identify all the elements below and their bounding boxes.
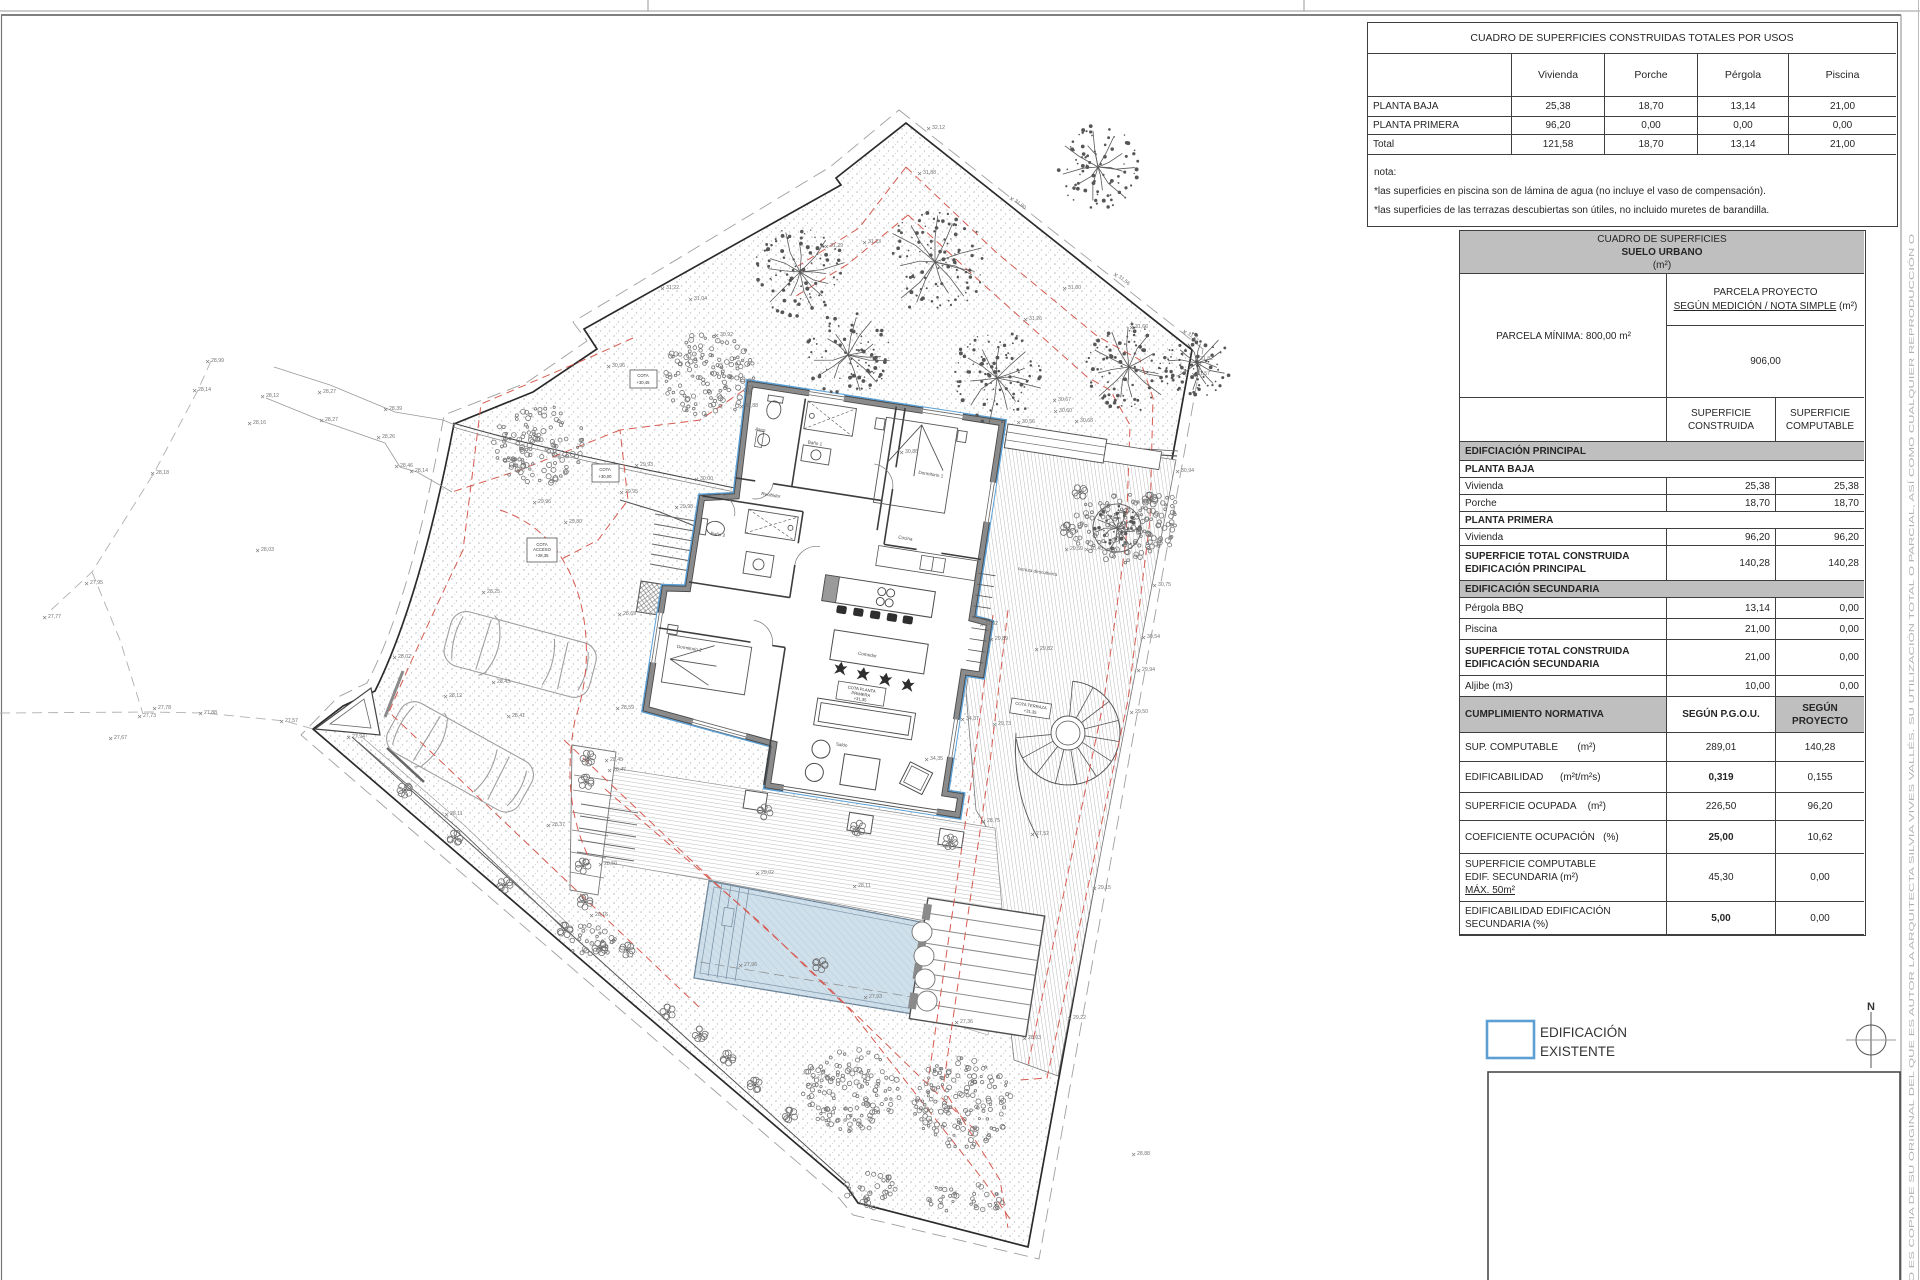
svg-text:COTA: COTA	[599, 467, 611, 472]
svg-text:30,68: 30,68	[1080, 418, 1093, 424]
svg-text:31,82: 31,82	[1200, 356, 1213, 362]
svg-text:30,54: 30,54	[1147, 634, 1160, 640]
svg-text:30,67: 30,67	[1058, 397, 1071, 403]
svg-text:29,94: 29,94	[1142, 667, 1155, 673]
svg-text:28,16: 28,16	[253, 420, 266, 426]
svg-text:31,26: 31,26	[1029, 316, 1042, 322]
svg-text:27,96: 27,96	[744, 962, 757, 968]
svg-text:27,67: 27,67	[114, 735, 127, 741]
svg-text:31,66: 31,66	[1135, 324, 1148, 330]
svg-text:28,43: 28,43	[497, 679, 510, 685]
svg-text:27,88: 27,88	[204, 710, 217, 716]
svg-text:29,82: 29,82	[1040, 646, 1053, 652]
svg-text:30,92: 30,92	[720, 332, 733, 338]
svg-text:27,77: 27,77	[48, 614, 61, 620]
svg-text:29,96: 29,96	[538, 499, 551, 505]
svg-text:27,57: 27,57	[285, 718, 298, 724]
svg-text:29,22: 29,22	[1073, 1015, 1086, 1021]
svg-text:27,94: 27,94	[352, 734, 365, 740]
svg-text:EDIFICACIÓN: EDIFICACIÓN	[1540, 1025, 1627, 1040]
svg-text:31,29: 31,29	[830, 243, 843, 249]
svg-text:28,26: 28,26	[382, 434, 395, 440]
svg-text:29,98: 29,98	[680, 504, 693, 510]
svg-text:30,00: 30,00	[700, 476, 713, 482]
svg-text:31,22: 31,22	[666, 285, 679, 291]
svg-text:29,50: 29,50	[1135, 709, 1148, 715]
svg-text:28,03: 28,03	[1028, 1035, 1041, 1041]
svg-text:34,37: 34,37	[966, 716, 979, 722]
svg-text:28,75: 28,75	[987, 818, 1000, 824]
svg-text:30,56: 30,56	[1022, 419, 1035, 425]
svg-text:31,60: 31,60	[1068, 285, 1081, 291]
svg-text:31,57: 31,57	[1197, 371, 1210, 377]
svg-text:28,47: 28,47	[613, 767, 626, 773]
svg-text:30,45: 30,45	[1090, 546, 1103, 552]
svg-text:28,59: 28,59	[621, 705, 634, 711]
svg-text:27,95: 27,95	[90, 580, 103, 586]
svg-text:28,88: 28,88	[1137, 1151, 1150, 1157]
svg-text:+28,35: +28,35	[536, 553, 550, 558]
svg-text:N: N	[1867, 1001, 1875, 1013]
svg-text:28,03: 28,03	[261, 547, 274, 553]
svg-text:28,46: 28,46	[400, 463, 413, 469]
svg-text:27,73: 27,73	[143, 713, 156, 719]
svg-text:ACCESO: ACCESO	[533, 547, 551, 552]
svg-text:28,18: 28,18	[156, 470, 169, 476]
svg-text:31,23: 31,23	[868, 239, 881, 245]
svg-text:29,89: 29,89	[995, 636, 1008, 642]
svg-text:27,86: 27,86	[817, 1074, 830, 1080]
svg-text:30,88: 30,88	[745, 403, 758, 409]
svg-text:29,80: 29,80	[569, 519, 582, 525]
svg-text:30,94: 30,94	[1181, 468, 1194, 474]
svg-text:27,52: 27,52	[1036, 831, 1049, 837]
svg-text:31,04: 31,04	[694, 296, 707, 302]
svg-text:28,39: 28,39	[389, 406, 402, 412]
svg-text:28,11: 28,11	[858, 883, 871, 889]
svg-text:28,16: 28,16	[595, 912, 608, 918]
svg-text:28,37: 28,37	[552, 822, 565, 828]
svg-text:29,93: 29,93	[640, 462, 653, 468]
svg-text:27,78: 27,78	[158, 705, 171, 711]
svg-text:28,12: 28,12	[266, 393, 279, 399]
svg-text:O ES COPIA DE SU ORIGINAL DEL: O ES COPIA DE SU ORIGINAL DEL QUE ES AUT…	[1907, 233, 1916, 1280]
svg-text:+30,00: +30,00	[599, 474, 613, 479]
svg-text:30,86: 30,86	[905, 449, 918, 455]
svg-text:28,11: 28,11	[450, 811, 463, 817]
svg-text:31,88: 31,88	[923, 170, 936, 176]
svg-text:29,02: 29,02	[761, 870, 774, 876]
svg-text:COTA: COTA	[637, 373, 649, 378]
svg-text:31,92: 31,92	[985, 621, 998, 627]
svg-text:30,75: 30,75	[1158, 582, 1171, 588]
svg-text:28,27: 28,27	[323, 389, 336, 395]
svg-text:29,73: 29,73	[998, 721, 1011, 727]
svg-text:27,36: 27,36	[960, 1019, 973, 1025]
svg-text:27,93: 27,93	[869, 994, 882, 1000]
svg-text:29,59: 29,59	[1070, 546, 1083, 552]
svg-text:32,12: 32,12	[932, 125, 945, 131]
svg-text:28,69: 28,69	[623, 611, 636, 617]
svg-text:+30,45: +30,45	[637, 380, 651, 385]
svg-text:28,14: 28,14	[415, 468, 428, 474]
svg-text:29,95: 29,95	[625, 489, 638, 495]
svg-text:28,50: 28,50	[604, 861, 617, 867]
svg-text:EXISTENTE: EXISTENTE	[1540, 1044, 1615, 1059]
svg-text:28,27: 28,27	[325, 417, 338, 423]
svg-text:34,35: 34,35	[930, 756, 943, 762]
svg-text:28,99: 28,99	[211, 358, 224, 364]
svg-text:28,45: 28,45	[610, 757, 623, 763]
svg-text:28,14: 28,14	[198, 387, 211, 393]
svg-text:28,25: 28,25	[487, 589, 500, 595]
svg-text:28,02: 28,02	[398, 654, 411, 660]
svg-text:28,41: 28,41	[512, 713, 525, 719]
svg-text:30,96: 30,96	[612, 363, 625, 369]
svg-text:28,12: 28,12	[449, 693, 462, 699]
svg-text:29,15: 29,15	[1098, 885, 1111, 891]
svg-text:30,60: 30,60	[1059, 408, 1072, 414]
